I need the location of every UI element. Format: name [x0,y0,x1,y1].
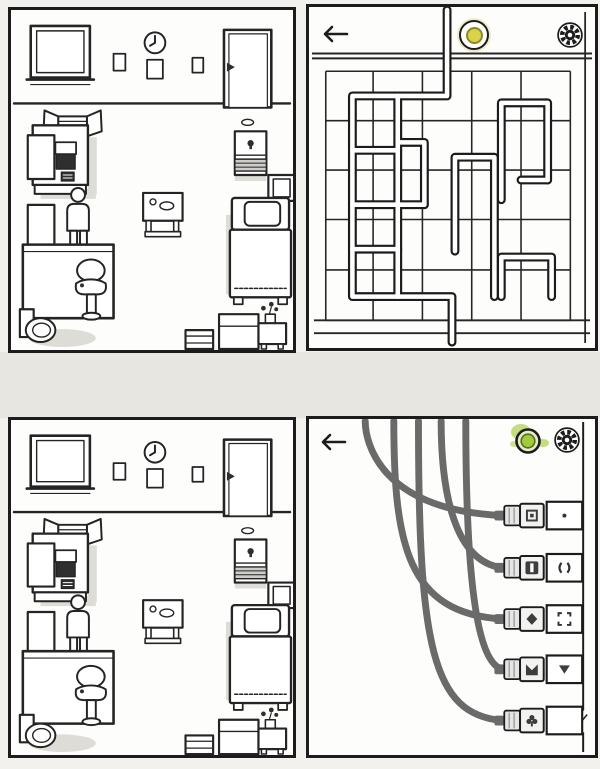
cable-2[interactable] [394,421,502,619]
socket-row-1[interactable] [494,502,582,530]
dresser[interactable] [219,720,258,754]
picture-frame-small-2[interactable] [147,60,163,79]
cable-5[interactable] [466,421,502,669]
panel-pipe-maze-puzzle[interactable] [306,4,598,351]
small-table[interactable] [143,193,182,237]
yellow-button-core [466,27,483,44]
plant-table[interactable] [258,302,286,349]
wall-socket-plate[interactable] [547,605,583,633]
plug-head-club[interactable] [520,709,544,733]
plant-table[interactable] [258,708,286,754]
pipe-maze-canvas[interactable] [309,7,595,348]
picture-frame-small-2[interactable] [147,469,163,488]
wall-clock[interactable] [145,32,166,53]
plug-connector[interactable] [504,609,520,629]
socket-row-3[interactable] [494,605,582,633]
mirror[interactable] [77,260,105,282]
person-body [67,611,89,637]
wall-socket-symbol-dot-icon [562,514,566,518]
yellow-round-button[interactable] [459,20,489,50]
wall-socket-plate[interactable] [547,554,583,582]
small-table[interactable] [143,600,182,643]
side-table[interactable] [28,612,55,651]
plant-pot [265,314,275,323]
plant-pot [265,720,275,729]
room-scene[interactable] [11,420,293,755]
panel-bedroom-overview-bottom[interactable] [8,417,296,758]
nightstand[interactable] [235,528,267,583]
bed[interactable] [230,605,291,710]
green-round-button-glowing[interactable] [505,421,553,461]
gear-icon[interactable] [557,22,583,48]
bed[interactable] [230,198,291,304]
socket-row-5[interactable] [494,707,582,735]
person-head [71,595,85,609]
drawer-stack[interactable] [186,330,214,349]
mirror[interactable] [77,666,105,688]
picture-frame-small-3[interactable] [192,58,203,73]
picture-frame-small-1[interactable] [114,54,126,71]
back-arrow-icon[interactable] [319,433,347,451]
door[interactable] [224,440,271,516]
person-head [71,188,85,202]
panel-bedroom-overview-top[interactable] [8,7,296,353]
drawer-stack[interactable] [186,735,214,754]
person-body [67,204,89,231]
plug-connector[interactable] [504,506,520,526]
cable-3[interactable] [418,421,502,721]
back-arrow-icon[interactable] [321,25,349,43]
socket-row-2[interactable] [494,554,582,582]
wardrobe[interactable] [28,543,55,586]
panel-gap-strip [0,352,600,418]
cable-1[interactable] [365,421,502,516]
wall-socket-plate[interactable] [547,707,583,735]
nightstand[interactable] [235,119,267,175]
socket-row-4[interactable] [494,655,582,683]
cables[interactable] [365,421,502,721]
panel-cable-plug-puzzle[interactable] [306,416,598,758]
window[interactable] [27,26,94,85]
door[interactable] [224,30,271,108]
plug-connector[interactable] [504,711,520,731]
plug-connector[interactable] [504,659,520,679]
screenshot-stage: { "meta": { "scene": "four-panel game sc… [0,0,600,769]
wall-clock[interactable] [145,442,166,463]
wardrobe[interactable] [28,135,55,179]
picture-frame-small-1[interactable] [114,463,126,480]
picture-frame-small-3[interactable] [192,467,203,482]
dresser[interactable] [219,314,258,349]
plug-connector[interactable] [504,558,520,578]
pillow [245,202,280,226]
room-scene[interactable] [11,10,293,350]
plug-head-crown-m[interactable] [520,657,544,681]
side-table[interactable] [28,205,55,245]
cable-puzzle-canvas[interactable] [309,419,595,755]
pillow [245,609,280,633]
gear-icon[interactable] [554,427,580,453]
window[interactable] [27,436,94,494]
plug-symbol-vertical-bar-icon [525,561,538,574]
